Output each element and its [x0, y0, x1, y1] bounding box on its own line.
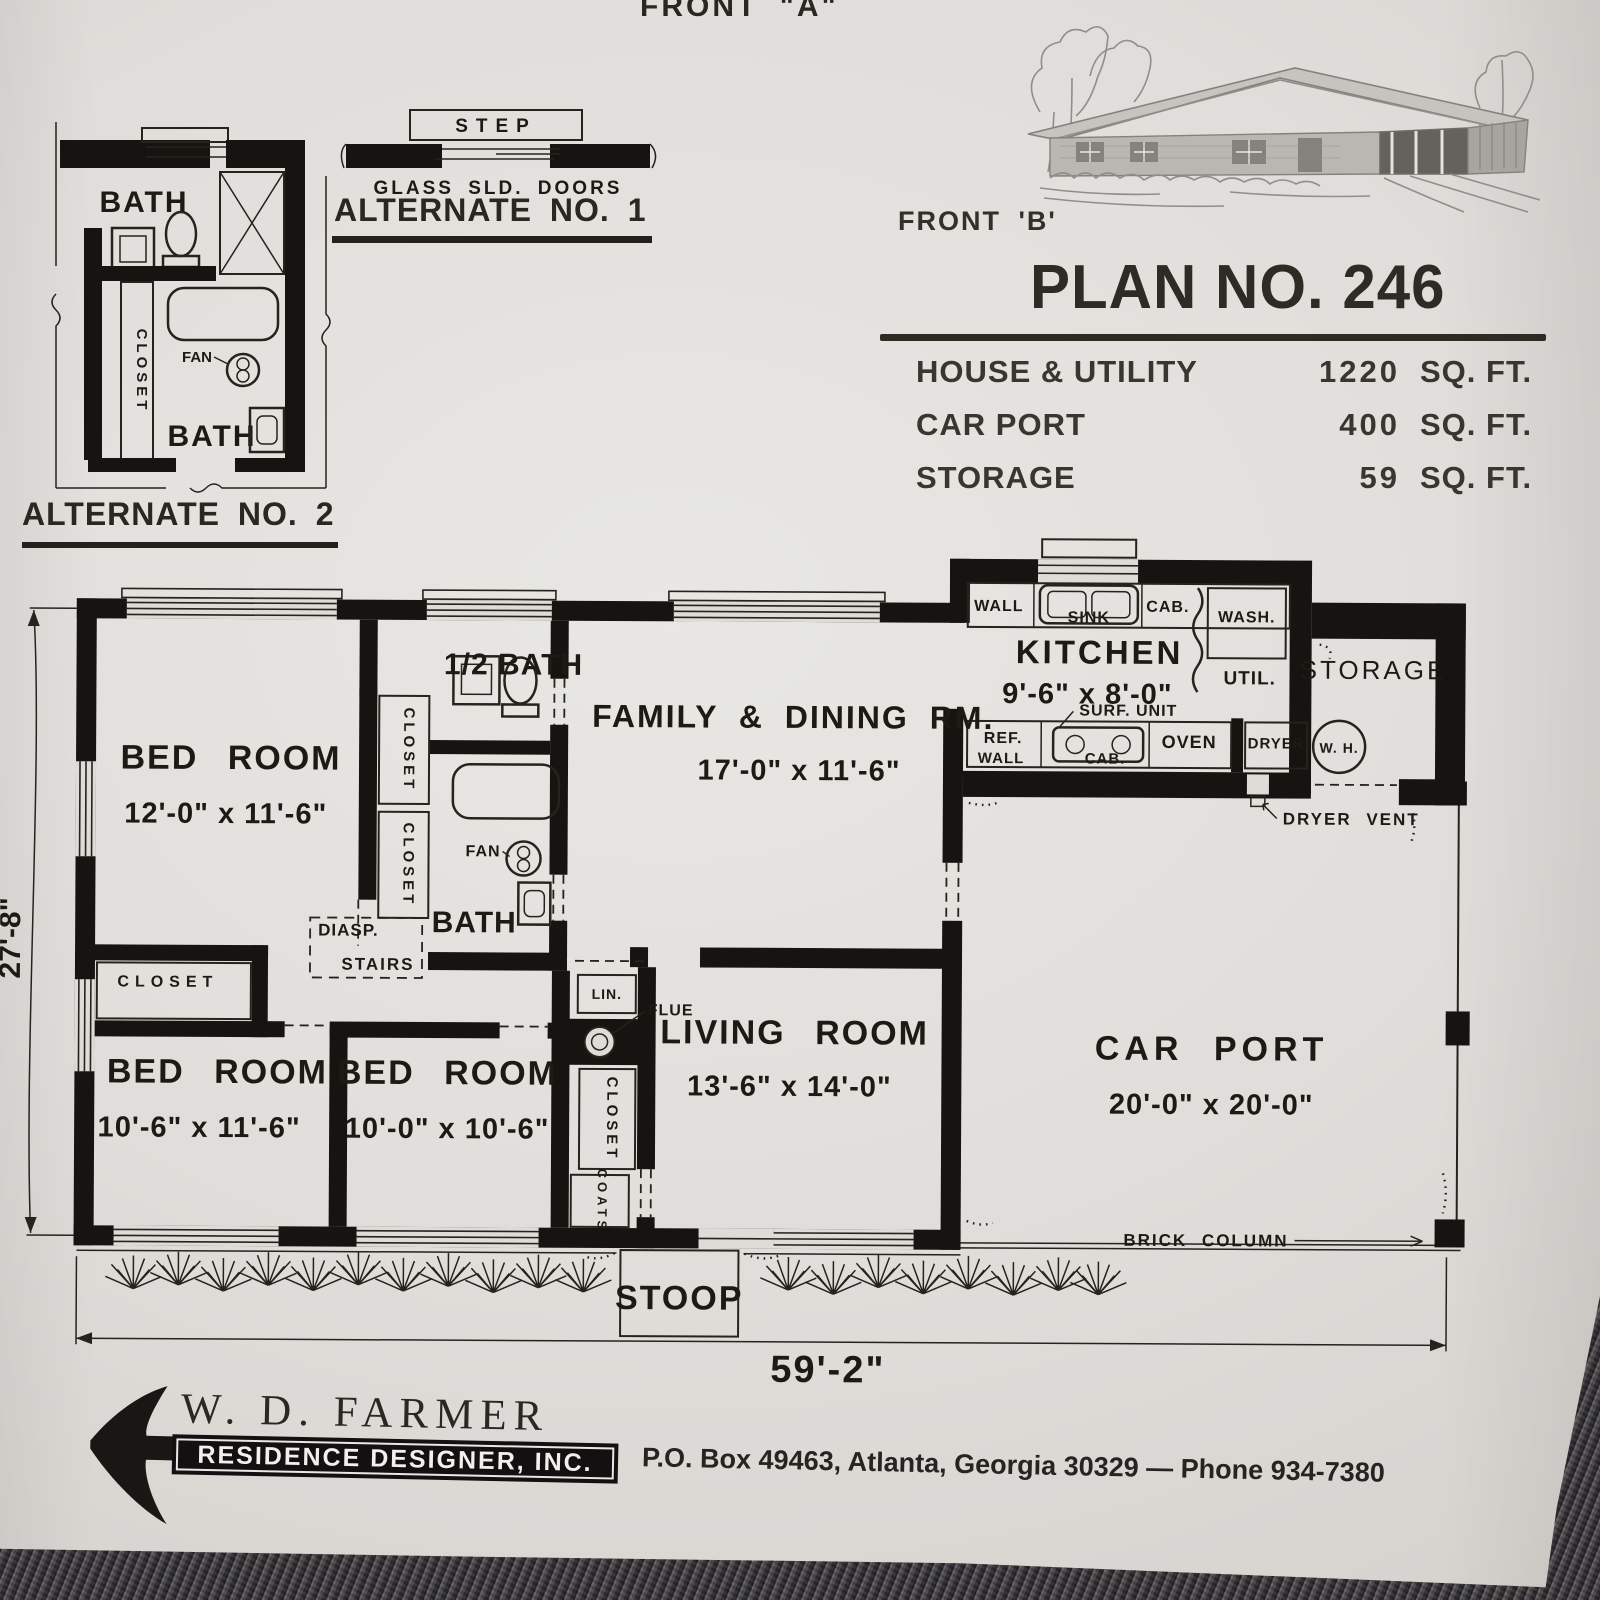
front-a-label: FRONT "A": [640, 0, 839, 24]
closet-label: CLOSET: [603, 1077, 620, 1162]
dryer-vent-label: DRYER VENT: [1283, 810, 1420, 830]
water-heater-label: W. H.: [1319, 740, 1358, 756]
family-room-dims: 17'-0" x 11'-6": [697, 754, 900, 787]
area-row: CAR PORT 400 SQ. FT.: [916, 407, 1552, 451]
wall-segment: [226, 140, 286, 168]
alternate1-underline: [332, 236, 652, 243]
dryer-label: DRYER: [1248, 735, 1305, 752]
sink-label: SINK: [1068, 609, 1110, 626]
living-room-dims: 13'-6" x 14'-0": [687, 1070, 892, 1103]
wall-segment: [86, 266, 216, 281]
overall-depth-dim: 27'-8": [0, 897, 27, 979]
area-row: STORAGE 59 SQ. FT.: [916, 460, 1552, 504]
bedroom2-name: BED ROOM: [107, 1052, 328, 1091]
half-bath-label: 1/2 BATH: [444, 648, 583, 682]
house-illustration: [980, 16, 1540, 221]
family-room-name: FAMILY & DINING RM.: [592, 698, 994, 736]
sliding-door-lines: [436, 149, 560, 159]
oven-label: OVEN: [1162, 732, 1217, 752]
carport-dims: 20'-0" x 20'-0": [1109, 1089, 1314, 1122]
plan-number-title: PLAN NO. 246: [1030, 251, 1445, 323]
designer-logo: W. D. FARMER RESIDENCE DESIGNER, INC.: [58, 1376, 641, 1548]
step-label: STEP: [455, 116, 537, 137]
designer-address: P.O. Box 49463, Atlanta, Georgia 30329 —…: [642, 1442, 1385, 1489]
linen-label: LIN.: [592, 986, 623, 1002]
area-unit: SQ. FT.: [1400, 407, 1552, 443]
area-value: 400: [1284, 407, 1400, 443]
bedroom1-name: BED ROOM: [120, 738, 341, 777]
lavatory-bowl: [120, 236, 146, 262]
closet-label: CLOSET: [399, 822, 416, 907]
kitchen-name: KITCHEN: [1016, 633, 1184, 671]
area-label: CAR PORT: [916, 407, 1284, 443]
toilet-tank: [163, 256, 199, 267]
wall-segment: [235, 458, 305, 472]
wall-segment: [60, 140, 210, 168]
bath-label: BATH: [167, 420, 256, 453]
closet-label: CLOSET: [117, 973, 218, 991]
washer-label: WASH.: [1218, 609, 1276, 626]
plan-sheet: FRONT "A" STEP GLASS SLD. DOORS ALTERNAT…: [0, 0, 1600, 1600]
storage-label: STORAGE: [1300, 655, 1448, 686]
window-sill: [142, 128, 228, 142]
wall-segment: [346, 144, 442, 168]
bath-fixtures: FAN: [452, 656, 559, 925]
area-unit: SQ. FT.: [1400, 460, 1552, 496]
fan-label: FAN: [466, 843, 501, 860]
lavatory: [112, 228, 154, 270]
wall-cab-label: WALL: [974, 598, 1023, 615]
tub: [168, 288, 278, 340]
wall-segment: [550, 144, 650, 168]
alternate2-drawing: BATH CLOSET FAN BATH: [26, 116, 338, 506]
alternate1-drawing: STEP GLASS SLD. DOORS: [336, 102, 666, 206]
bedroom3-name: BED ROOM: [337, 1054, 558, 1093]
area-unit: SQ. FT.: [1400, 354, 1552, 390]
wall-segment: [84, 228, 102, 460]
kitchen-dims: 9'-6" x 8'-0": [1002, 678, 1173, 711]
util-label: UTIL.: [1223, 668, 1276, 689]
landscaping: [1040, 173, 1540, 212]
cab-label: CAB.: [1085, 750, 1126, 767]
stairs-label: STAIRS: [341, 955, 414, 974]
front-b-label: FRONT 'B': [898, 206, 1057, 237]
fan-symbol-inner: [237, 358, 249, 370]
title-underline: [880, 334, 1546, 341]
shower-cross: [220, 172, 284, 274]
alternate1-caption: ALTERNATE NO. 1: [334, 192, 646, 229]
area-table: HOUSE & UTILITY 1220 SQ. FT. CAR PORT 40…: [916, 354, 1552, 513]
area-value: 59: [1284, 460, 1400, 496]
bedroom2-dims: 10'-6" x 11'-6": [98, 1111, 301, 1144]
wall-segment: [285, 140, 305, 470]
coats-label: COATS: [595, 1169, 610, 1234]
fan-label: FAN: [182, 349, 212, 366]
area-value: 1220: [1284, 354, 1400, 390]
utility-divider: [1193, 588, 1203, 692]
area-row: HOUSE & UTILITY 1220 SQ. FT.: [916, 354, 1552, 398]
area-label: STORAGE: [916, 460, 1284, 496]
brick-column-label: BRICK COLUMN: [1123, 1231, 1288, 1251]
stoop-area: STOOP: [76, 1247, 1126, 1338]
overall-width-dim: 59'-2": [770, 1349, 885, 1392]
bedroom3-dims: 10'-0" x 10'-6": [345, 1113, 550, 1146]
stoop-label: STOOP: [615, 1279, 744, 1318]
cab-label: CAB.: [1146, 599, 1189, 616]
bath-label: BATH: [432, 906, 517, 939]
disappearing-stairs-label: DIASP.: [318, 920, 379, 939]
main-floor-plan: WALL CAB. SINK WASH. UTIL. REF. WALL CAB…: [0, 526, 1600, 1398]
living-room-name: LIVING ROOM: [660, 1013, 929, 1052]
lavatory-bowl: [257, 416, 277, 444]
bedroom1-dims: 12'-0" x 11'-6": [124, 797, 327, 830]
fan-leader: [214, 357, 228, 364]
fan-symbol-inner: [237, 370, 249, 382]
area-label: HOUSE & UTILITY: [916, 354, 1284, 390]
closet-label: CLOSET: [400, 707, 417, 792]
carport-name: CAR PORT: [1095, 1030, 1329, 1069]
wall-segment: [88, 458, 176, 472]
designer-name: W. D. FARMER: [181, 1385, 550, 1440]
house-body: [1028, 68, 1528, 176]
closet-label: CLOSET: [133, 329, 150, 414]
wall-cab-label: WALL: [978, 750, 1025, 767]
